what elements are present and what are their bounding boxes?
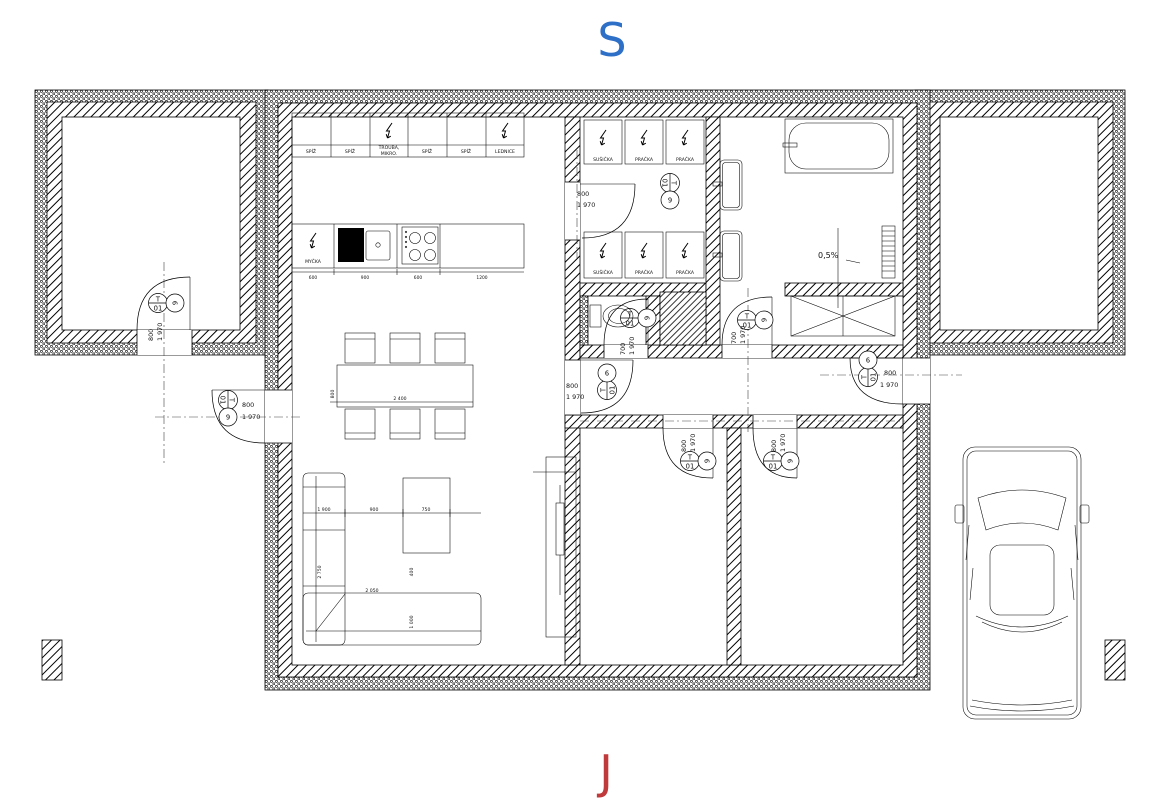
appliance-label: PRAČKA	[635, 156, 654, 163]
dim-west-door-h: 1 970	[242, 413, 260, 421]
shower-wall	[785, 283, 903, 296]
dim-bed2-door-w: 800	[770, 440, 778, 452]
side-mirror	[955, 505, 964, 523]
counter-dim: 900	[361, 275, 370, 281]
table-depth-dim: 800	[330, 390, 336, 399]
side-mirror	[1080, 505, 1089, 523]
dim-hall-door-w: 800	[566, 382, 578, 390]
dim-hall-door-h: 1 970	[566, 393, 584, 401]
dim-wc-door-h: 1 970	[628, 337, 636, 355]
tv	[556, 503, 564, 555]
dim-storage-door-w: 800	[147, 329, 155, 341]
slope-label: 0,5%	[818, 251, 839, 260]
table-length-dim: 2 400	[393, 396, 406, 402]
cabinet-label: MIKRO.	[381, 151, 397, 157]
dim-bath-door-h: 1 970	[739, 326, 747, 344]
pillar-left	[42, 640, 62, 680]
car-roof	[990, 545, 1054, 615]
appliance-label: SUŠIČKA	[593, 156, 614, 163]
counter-dim: 1200	[476, 275, 487, 281]
sofa-dim: 1 900	[317, 507, 330, 513]
sofa-dim: 2 050	[365, 588, 378, 594]
dim-laundry-door-h: 1 970	[577, 201, 595, 209]
floor-plan-drawing: T 01 9	[0, 0, 1157, 807]
floor-plan-page: T 01 9	[0, 0, 1157, 807]
sofa-dim: 900	[370, 507, 379, 513]
pillar-right	[1105, 640, 1125, 680]
cabinet-label: TROUBA,	[378, 145, 400, 151]
appliance-label: PRAČKA	[676, 156, 695, 163]
dim-east-door-w: 800	[884, 369, 896, 377]
shaft	[660, 292, 706, 345]
sofa-dim: 2 750	[317, 565, 323, 578]
car	[955, 447, 1089, 719]
dishwasher-label: MYČKA	[305, 258, 322, 265]
counter-dim: 600	[414, 275, 423, 281]
counter-dim: 600	[309, 275, 318, 281]
dim-wc-door-w: 700	[619, 343, 627, 355]
cabinet-label: LEDNICE	[495, 149, 515, 155]
dim-bed1-door-h: 1 970	[689, 434, 697, 452]
sofa-dim: 750	[422, 507, 431, 513]
dim-bed1-door-w: 800	[680, 440, 688, 452]
sofa-dim: 400	[409, 568, 415, 577]
appliance-label: PRAČKA	[635, 269, 654, 276]
appliance-label: PRAČKA	[676, 269, 695, 276]
room-storage-right	[940, 117, 1098, 330]
compass-north-label: S	[597, 13, 626, 67]
dim-bed2-door-h: 1 970	[779, 434, 787, 452]
dim-bath-door-w: 700	[730, 332, 738, 344]
dim-laundry-door-w: 800	[577, 190, 589, 198]
appliance-label: SUŠIČKA	[593, 269, 614, 276]
dim-storage-door-h: 1 970	[156, 323, 164, 341]
sofa-dim: 1 000	[409, 615, 415, 628]
dim-east-door-h: 1 970	[880, 381, 898, 389]
dim-west-door-w: 800	[242, 401, 254, 409]
compass-south-label: J	[596, 745, 613, 799]
